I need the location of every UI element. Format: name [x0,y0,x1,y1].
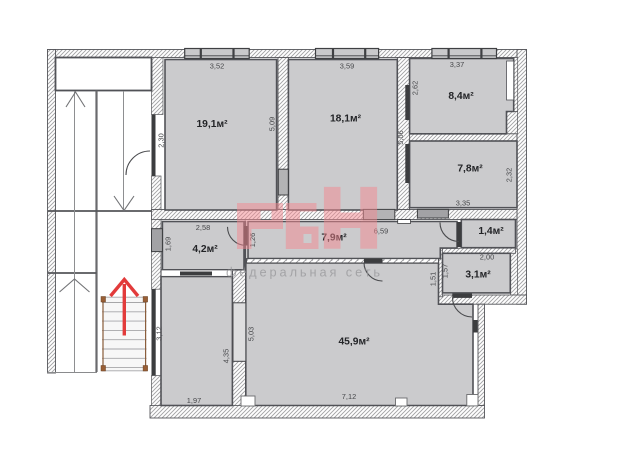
svg-text:1,97: 1,97 [187,396,201,405]
svg-text:3,12: 3,12 [155,326,164,340]
svg-text:8,4м²: 8,4м² [448,91,474,102]
svg-text:3,52: 3,52 [210,62,224,71]
svg-text:18,1м²: 18,1м² [330,114,362,125]
svg-text:45,9м²: 45,9м² [338,337,370,348]
svg-text:1,69: 1,69 [164,237,173,251]
svg-text:7,8м²: 7,8м² [457,164,483,175]
svg-text:7,12: 7,12 [342,392,356,401]
svg-text:2,58: 2,58 [196,223,210,232]
svg-text:5,09: 5,09 [268,117,277,131]
svg-text:3,37: 3,37 [450,60,464,69]
svg-text:2,00: 2,00 [480,253,494,262]
svg-text:1,51: 1,51 [429,272,438,286]
svg-text:3,59: 3,59 [340,62,354,71]
svg-text:4,2м²: 4,2м² [192,244,218,255]
svg-text:5,03: 5,03 [247,327,256,341]
svg-text:3,1м²: 3,1м² [465,270,491,281]
svg-text:3,35: 3,35 [456,199,470,208]
svg-text:2,62: 2,62 [411,81,420,95]
svg-text:федеральная сеть: федеральная сеть [226,265,383,280]
svg-text:1,57: 1,57 [441,264,450,278]
svg-text:1,4м²: 1,4м² [478,226,504,237]
svg-text:2,32: 2,32 [505,168,514,182]
svg-text:5,06: 5,06 [396,130,405,144]
svg-text:19,1м²: 19,1м² [196,119,228,130]
svg-text:4,35: 4,35 [222,349,231,363]
svg-text:2,30: 2,30 [157,133,166,147]
